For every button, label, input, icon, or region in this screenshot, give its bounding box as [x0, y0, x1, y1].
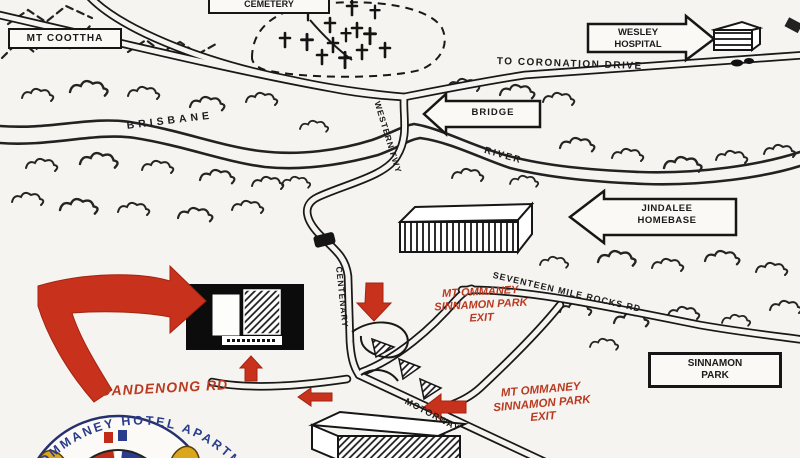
- mt-cootha-label: MT COOTTHA: [8, 28, 122, 49]
- route-arrow-up-small: [240, 356, 262, 381]
- sinnamon-label-line1: SINNAMON: [651, 358, 779, 370]
- hotel-directions-map: MT OMMANEY HOTEL APARTMENTS MT COOTTHA T…: [0, 0, 800, 458]
- car-dot-3: [784, 17, 800, 33]
- exit-annotation-1: MT OMMANEY SINNAMON PARK EXIT: [404, 282, 558, 329]
- car-dot-1: [731, 60, 743, 67]
- jindalee-label: JINDALEE HOMEBASE: [604, 203, 730, 227]
- cemetery-label: TOOWONG CEMETERY: [208, 0, 330, 14]
- wesley-hospital-label: WESLEY HOSPITAL: [592, 27, 684, 51]
- jindalee-label-line2: HOMEBASE: [604, 215, 730, 227]
- wesley-label-line1: WESLEY: [592, 27, 684, 39]
- hotel-logo: MT OMMANEY HOTEL APARTMENTS: [18, 414, 270, 458]
- cemetery-label-line2: CEMETERY: [210, 0, 328, 10]
- hotel-marker: [186, 284, 304, 350]
- route-arrow-down: [357, 283, 391, 321]
- route-arrow-left-small: [298, 388, 332, 406]
- wesley-hospital-building: [714, 22, 760, 50]
- wesley-label-line2: HOSPITAL: [592, 39, 684, 51]
- bridge-label: BRIDGE: [450, 107, 536, 118]
- jindalee-label-line1: JINDALEE: [604, 203, 730, 215]
- car-dot-2: [744, 58, 754, 64]
- sinnamon-label-line2: PARK: [651, 370, 779, 382]
- sinnamon-park-label: SINNAMON PARK: [648, 352, 782, 388]
- riverside-building: [400, 204, 532, 252]
